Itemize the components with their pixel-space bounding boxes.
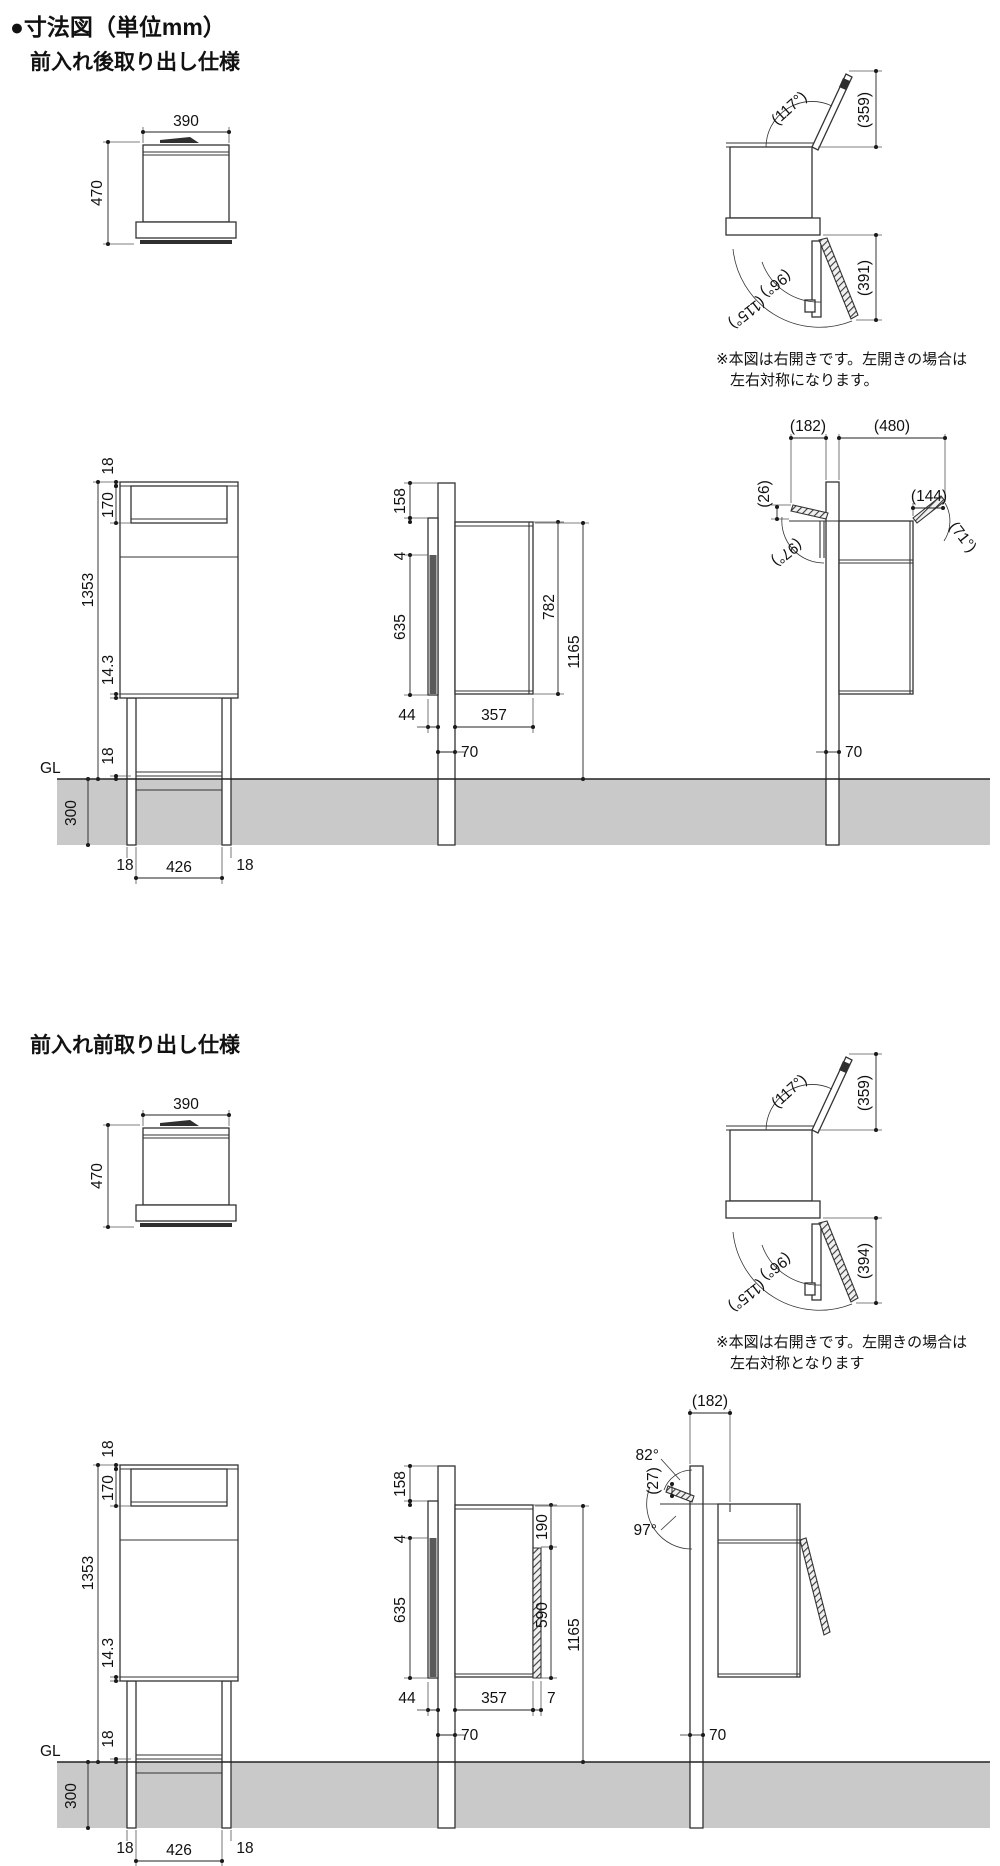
- dim-height-above-gl: 1165: [566, 1618, 583, 1651]
- dim-post-left: 18: [116, 1840, 133, 1857]
- dim-door-angle-outer: (115°): [725, 1276, 768, 1315]
- dim-post-width: 70: [709, 1727, 727, 1744]
- dim-depth: 357: [481, 707, 507, 724]
- dim-rail: 14.3: [100, 655, 117, 685]
- dim-offset: 44: [398, 707, 416, 724]
- dim-post-right: 18: [236, 857, 253, 874]
- dim-height-above-gl: 1165: [566, 635, 583, 668]
- gl-label: GL: [40, 1743, 61, 1760]
- dim-depth: 357: [481, 1690, 507, 1707]
- front-view-s2: [103, 1110, 236, 1227]
- section1-drawings: 390 470 (117°) (359) (96°) (115°) (391) …: [40, 71, 990, 884]
- dim-top-frame: 18: [100, 457, 117, 474]
- dim-offset: 44: [398, 1690, 416, 1707]
- dim-lid-height: (359): [856, 1075, 873, 1111]
- dim-span: 426: [166, 859, 192, 876]
- dim-rise: (26): [756, 480, 773, 508]
- dim-span: 426: [166, 1842, 192, 1859]
- dim-post-right: 18: [236, 1840, 253, 1857]
- dim-total-height: 1353: [80, 1556, 97, 1590]
- ground-band: [57, 1762, 990, 1828]
- section2-drawings: 390 470 (117°) (359) (96°) (115°) (394) …: [40, 1054, 990, 1866]
- dim-opening: 170: [100, 492, 117, 518]
- dim-total-height: 1353: [80, 573, 97, 607]
- dim-lip: 4: [392, 551, 409, 560]
- dim-front-reach: (480): [874, 418, 910, 435]
- dim-lid-angle: (117°): [768, 88, 810, 128]
- dim-top-offset: 158: [392, 488, 409, 514]
- dim-above-gl: 18: [100, 747, 117, 764]
- dim-upper-angle: 82°: [636, 1447, 659, 1464]
- dim-opening-height: 190: [534, 1514, 551, 1540]
- dim-embed: 300: [63, 800, 80, 826]
- dim-lip: 4: [392, 1534, 409, 1543]
- dim-door-angle-outer: (115°): [725, 293, 768, 332]
- dim-post-left: 18: [116, 857, 133, 874]
- dim-lid-reach: (144): [911, 488, 947, 505]
- drawing-canvas: 390 470 (117°) (359) (96°) (115°) (391) …: [0, 0, 1000, 1866]
- dim-front-height: 470: [89, 180, 106, 206]
- dim-door-thickness: 7: [547, 1690, 556, 1707]
- dim-door-height: 635: [392, 614, 409, 640]
- dim-rail: 14.3: [100, 1638, 117, 1668]
- dim-gap: (27): [645, 1467, 662, 1495]
- dim-door-angle-inner: (96°): [757, 1250, 794, 1284]
- dim-box-height: 782: [541, 594, 558, 620]
- dim-rear-reach: (182): [790, 418, 826, 435]
- ground-band: [57, 779, 990, 845]
- dim-front-width: 390: [173, 113, 199, 130]
- gl-label: GL: [40, 760, 61, 777]
- dim-lid-angle: (117°): [768, 1071, 810, 1111]
- dim-top-offset: 158: [392, 1471, 409, 1497]
- dim-opening: 170: [100, 1475, 117, 1501]
- dim-lid-height: (359): [856, 92, 873, 128]
- dim-front-width: 390: [173, 1096, 199, 1113]
- dim-door-reach: (394): [856, 1243, 873, 1279]
- dim-door-reach: (391): [856, 260, 873, 296]
- dim-rear-height: 635: [392, 1597, 409, 1623]
- dim-embed: 300: [63, 1783, 80, 1809]
- front-view-s1: [103, 127, 236, 244]
- dim-door-angle-inner: (96°): [757, 267, 794, 301]
- dim-reach: (182): [692, 1393, 728, 1410]
- dim-post-width: 70: [845, 744, 863, 761]
- dim-post-width: 70: [461, 1727, 479, 1744]
- dim-top-frame: 18: [100, 1440, 117, 1457]
- dim-front-height: 470: [89, 1163, 106, 1189]
- dimension-drawing-page: ●寸法図（単位mm） 前入れ後取り出し仕様 前入れ前取り出し仕様 ※本図は右開き…: [0, 0, 1000, 1866]
- dim-lower-angle: 97°: [634, 1522, 657, 1539]
- dim-post-width: 70: [461, 744, 479, 761]
- dim-above-gl: 18: [100, 1730, 117, 1747]
- dim-lid-open-angle: (71°): [946, 519, 980, 556]
- dim-door-height: 590: [534, 1602, 551, 1628]
